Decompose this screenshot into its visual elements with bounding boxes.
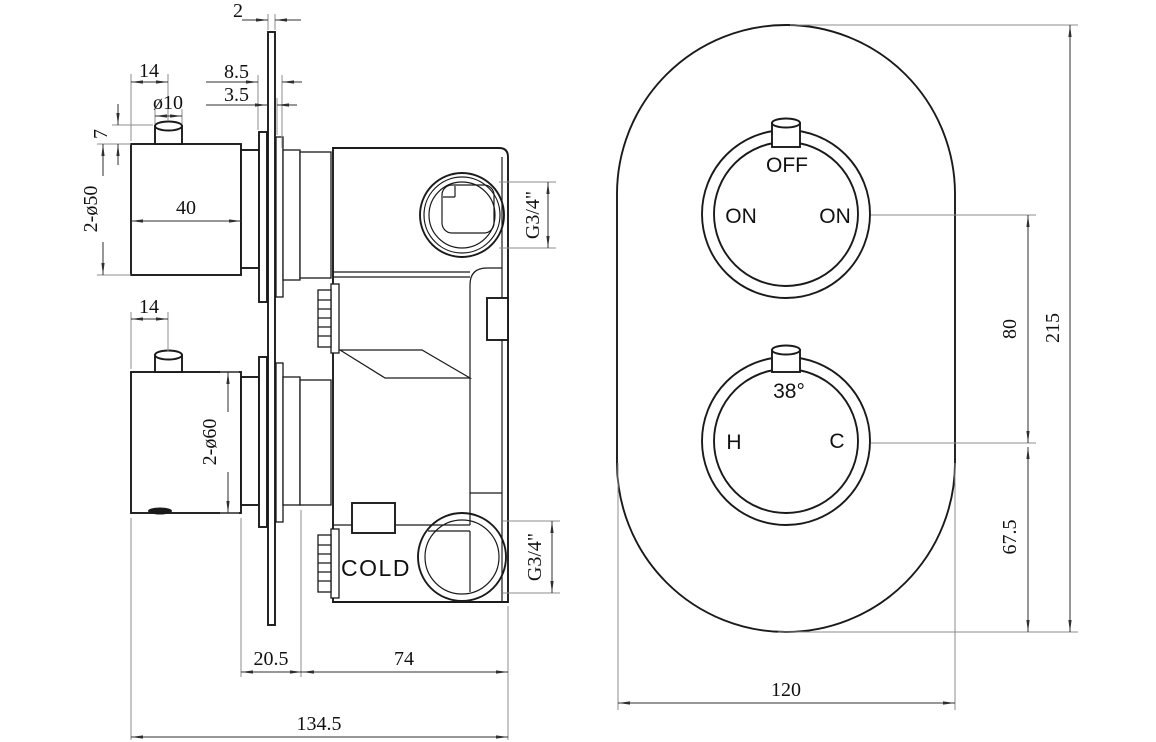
diverter-plate: [340, 350, 470, 378]
side-view: COLD 2 14 8.5: [80, 0, 560, 740]
wall-plate: [268, 32, 275, 625]
dimensions-side: 2 14 8.5 3.5 ø10 7 2-ø50: [80, 0, 560, 740]
label-on-left: ON: [725, 205, 757, 228]
bottom-sleeve: [259, 357, 267, 527]
dim-button-diameter: ø10: [153, 92, 183, 114]
dim-thread-bottom: G3/4": [524, 533, 546, 581]
top-handle: [131, 122, 331, 303]
label-off: OFF: [766, 154, 808, 177]
bottom-knob-side: [131, 372, 241, 513]
dim-knob-spacing: 80: [999, 319, 1021, 339]
dim-total-depth: 134.5: [297, 713, 342, 735]
technical-drawing-canvas: COLD 2 14 8.5: [0, 0, 1156, 742]
bottom-adapter: [241, 377, 259, 505]
onoff-knob: OFF ON ON: [702, 119, 870, 299]
label-hot: H: [726, 431, 741, 454]
side-outlet: [487, 298, 508, 340]
dim-button-offset-bottom: 14: [139, 296, 159, 318]
dim-plate-width: 120: [771, 679, 801, 701]
dim-depth-a: 8.5: [224, 61, 249, 83]
top-outlet-port: [420, 173, 504, 257]
connector-block: [352, 503, 395, 533]
temp-knob: 38° H C: [702, 346, 870, 526]
cold-inlet-port: [418, 513, 506, 601]
dim-wall-offset: 20.5: [254, 648, 289, 670]
dimensions-front: 80 67.5 215 120: [618, 25, 1078, 710]
cold-inlet-label: COLD: [341, 555, 411, 581]
dim-knob-diameter-bottom: 2-ø60: [199, 419, 221, 466]
bottom-handle: [131, 351, 331, 528]
dim-depth-b: 3.5: [224, 84, 249, 106]
dim-knob-diameter-top: 2-ø50: [80, 186, 102, 233]
bottom-knob-mark: [148, 508, 172, 515]
top-sleeve: [259, 132, 267, 302]
dim-button-offset-top: 14: [139, 60, 159, 82]
label-on-right: ON: [819, 205, 851, 228]
valve-body: [318, 148, 508, 602]
top-adapter: [241, 150, 259, 268]
dim-body-depth: 74: [394, 648, 414, 670]
dim-knob-length: 40: [176, 197, 196, 219]
faceplate-oval: [617, 25, 955, 632]
label-temp: 38°: [773, 380, 805, 403]
dim-bottom-offset: 67.5: [999, 520, 1021, 555]
dim-thread-top: G3/4": [522, 191, 544, 239]
label-cold: C: [829, 430, 844, 453]
dim-plate-thickness: 2: [233, 0, 243, 22]
front-view: OFF ON ON 38° H C 80 67.5: [617, 25, 1078, 710]
dim-total-height: 215: [1042, 313, 1064, 343]
dim-button-height: 7: [90, 129, 112, 139]
top-button-cap: [155, 122, 182, 131]
